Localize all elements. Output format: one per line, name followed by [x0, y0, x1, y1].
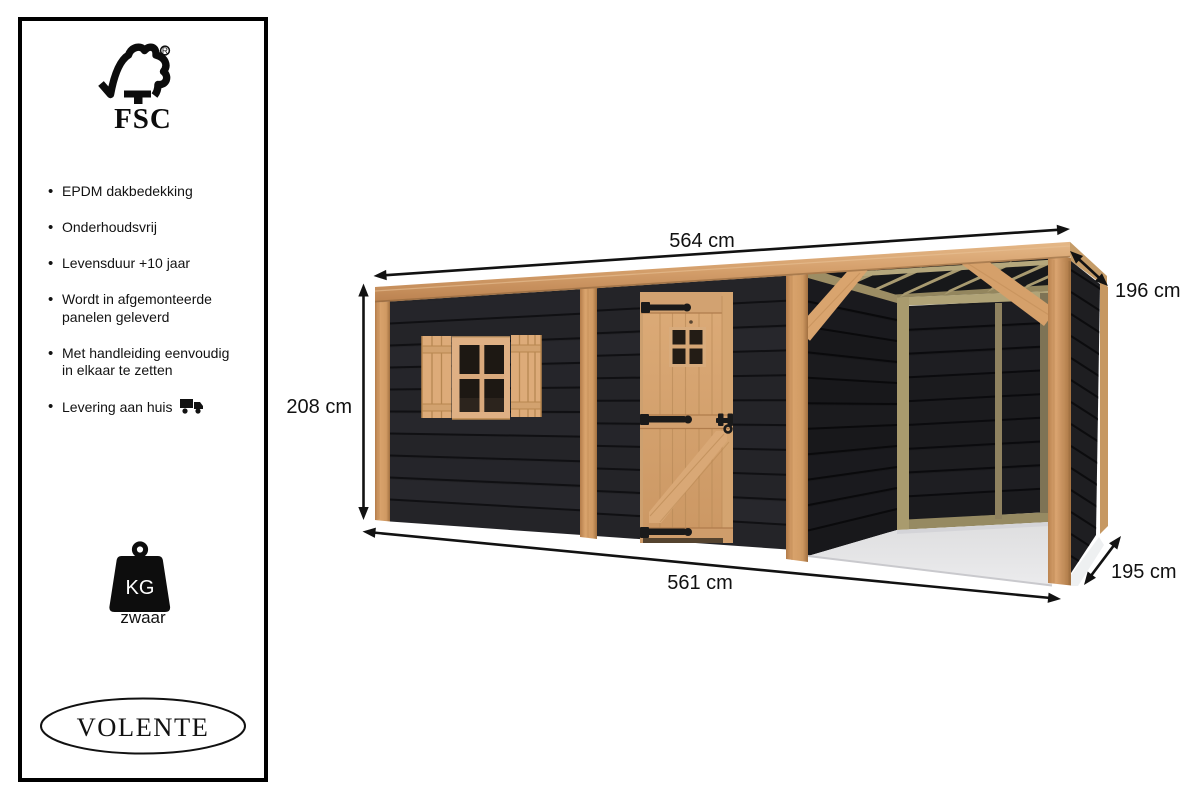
svg-text:564 cm: 564 cm: [669, 230, 735, 252]
svg-text:196 cm: 196 cm: [1115, 280, 1181, 302]
svg-text:195 cm: 195 cm: [1111, 561, 1177, 583]
svg-text:208 cm: 208 cm: [286, 396, 352, 418]
svg-text:561 cm: 561 cm: [667, 572, 733, 594]
